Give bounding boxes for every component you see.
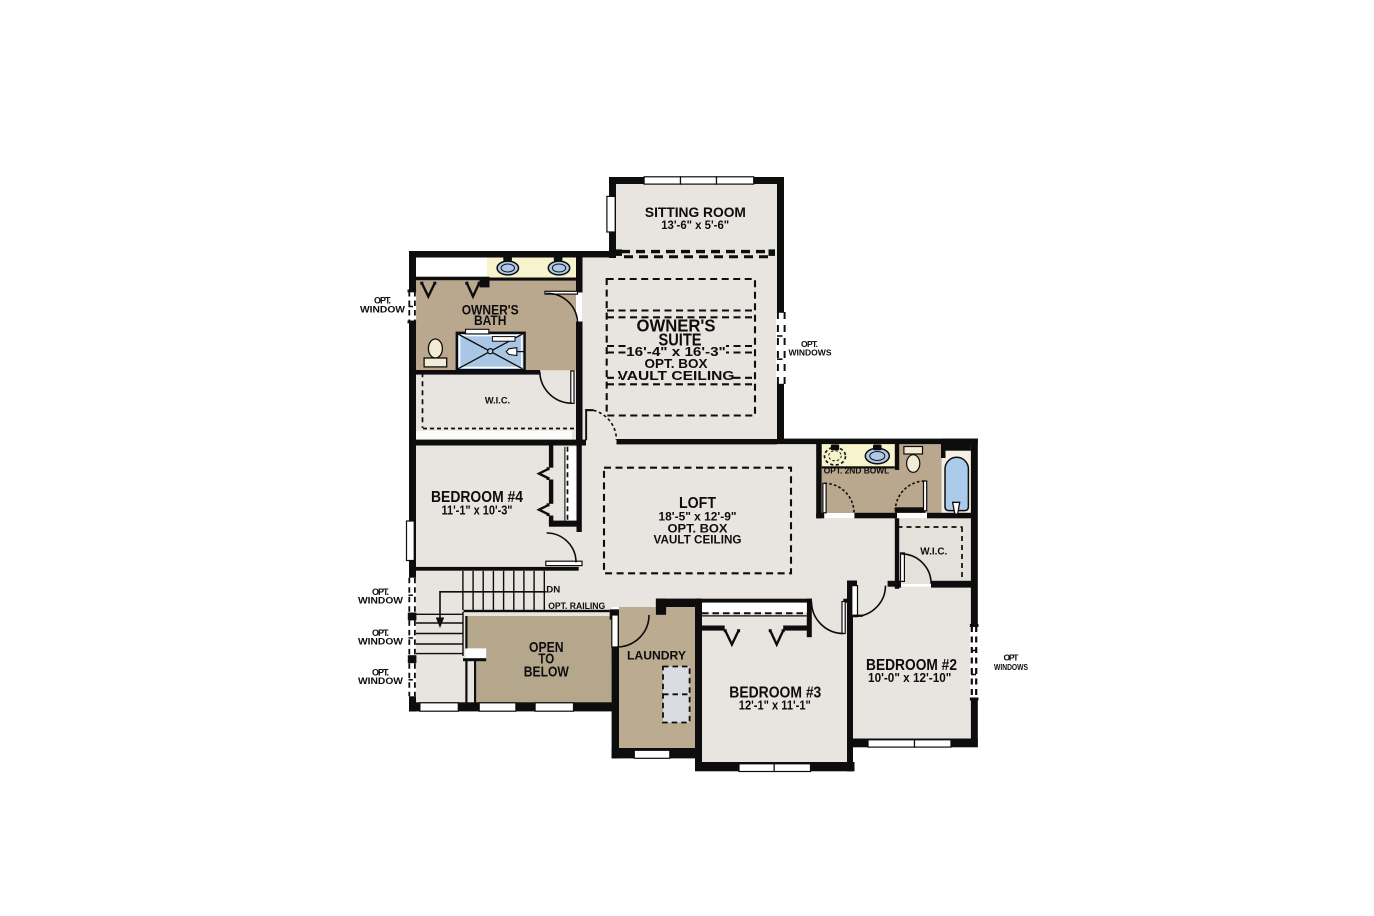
svg-text:LAUNDRY: LAUNDRY (627, 649, 686, 663)
svg-text:W.I.C.: W.I.C. (920, 547, 947, 558)
svg-text:VAULT CEILING: VAULT CEILING (618, 368, 735, 383)
svg-text:WINDOW: WINDOW (358, 676, 404, 686)
svg-text:OPT: OPT (1004, 653, 1020, 663)
svg-text:13'-6" x 5'-6": 13'-6" x 5'-6" (661, 220, 729, 232)
svg-text:12'-1" x 11'-1": 12'-1" x 11'-1" (739, 698, 811, 713)
svg-text:WINDOW: WINDOW (358, 637, 404, 647)
svg-text:OPT. RAILING: OPT. RAILING (548, 601, 605, 611)
svg-text:WINDOW: WINDOW (358, 596, 404, 606)
svg-text:BATH: BATH (474, 313, 507, 328)
svg-text:WINDOW: WINDOW (360, 305, 406, 315)
svg-text:WINDOWS: WINDOWS (789, 348, 832, 358)
svg-text:11'-1" x 10'-3": 11'-1" x 10'-3" (442, 502, 513, 517)
svg-text:DN: DN (546, 585, 560, 596)
svg-text:10'-0" x 12'-10": 10'-0" x 12'-10" (868, 670, 951, 685)
svg-text:W.I.C.: W.I.C. (485, 396, 510, 407)
svg-text:OPT. 2ND BOWL: OPT. 2ND BOWL (824, 466, 890, 475)
svg-text:WINDOWS: WINDOWS (994, 662, 1028, 672)
svg-text:VAULT CEILING: VAULT CEILING (654, 532, 742, 546)
svg-text:SITTING ROOM: SITTING ROOM (645, 204, 746, 220)
svg-text:BELOW: BELOW (524, 664, 569, 680)
